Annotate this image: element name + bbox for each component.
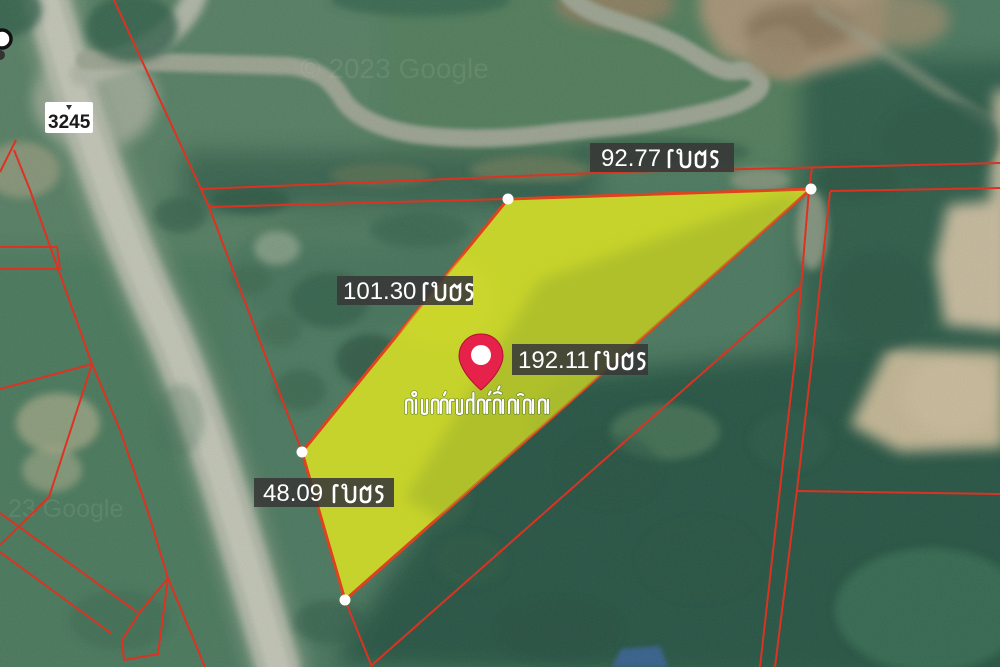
svg-text:3245: 3245 <box>48 112 91 133</box>
svg-text:101.30: 101.30 <box>343 278 416 305</box>
svg-text:48.09: 48.09 <box>263 480 323 507</box>
svg-text:92.77: 92.77 <box>601 145 661 172</box>
svg-text:192.11: 192.11 <box>518 347 590 374</box>
